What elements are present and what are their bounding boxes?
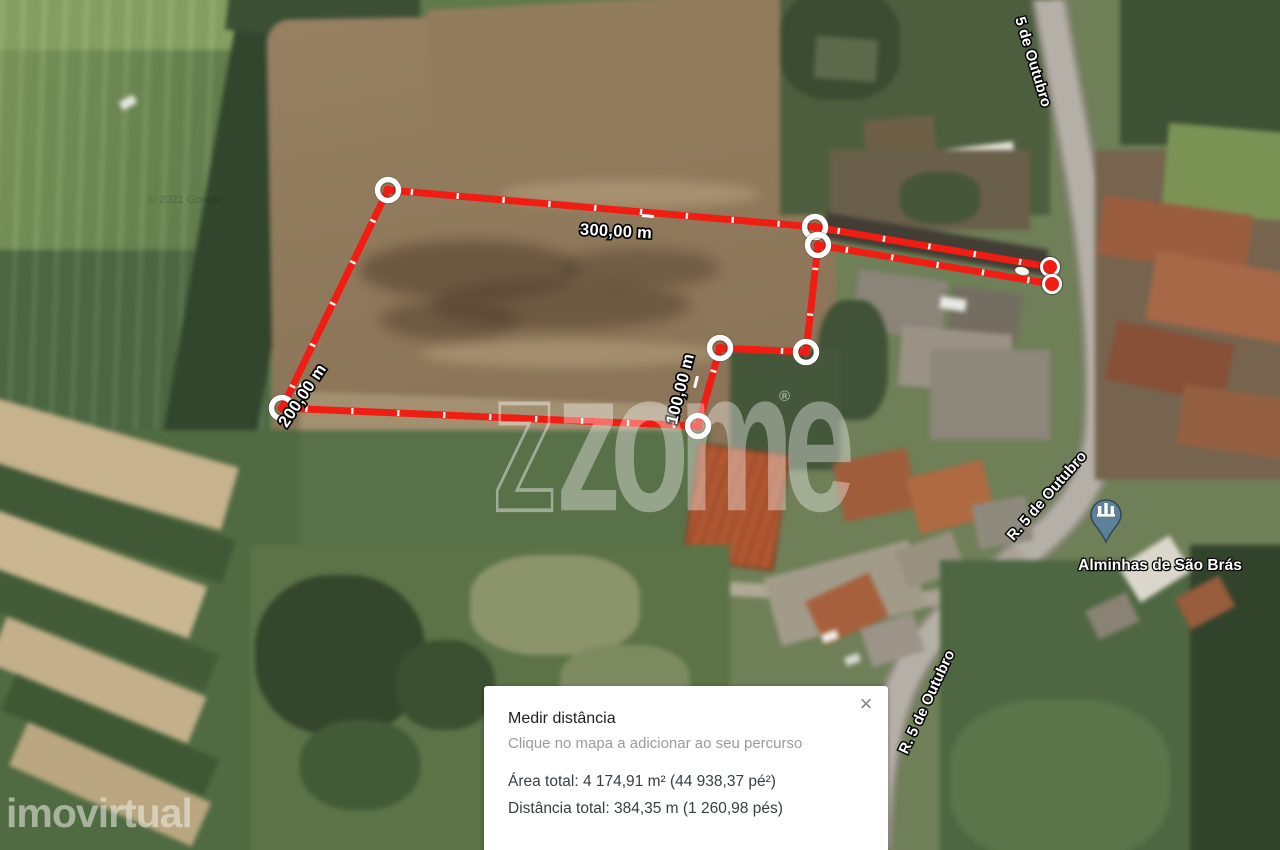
map-canvas[interactable]: 5 de OutubroR. 5 de OutubroR. 5 de Outub… — [0, 0, 1280, 850]
panel-title: Medir distância — [508, 710, 864, 728]
distance-total-value: Distância total: 384,35 m (1 260,98 pés) — [508, 795, 864, 822]
poi-label[interactable]: Alminhas de São Brás — [1078, 557, 1242, 575]
panel-subtitle: Clique no mapa a adicionar ao seu percur… — [508, 735, 864, 752]
measure-distance-panel: × Medir distância Clique no mapa a adici… — [484, 686, 888, 850]
close-icon[interactable]: × — [854, 692, 878, 716]
shrine-pin-icon[interactable] — [1089, 498, 1123, 549]
area-total-value: Área total: 4 174,91 m² (44 938,37 pé²) — [508, 768, 864, 795]
